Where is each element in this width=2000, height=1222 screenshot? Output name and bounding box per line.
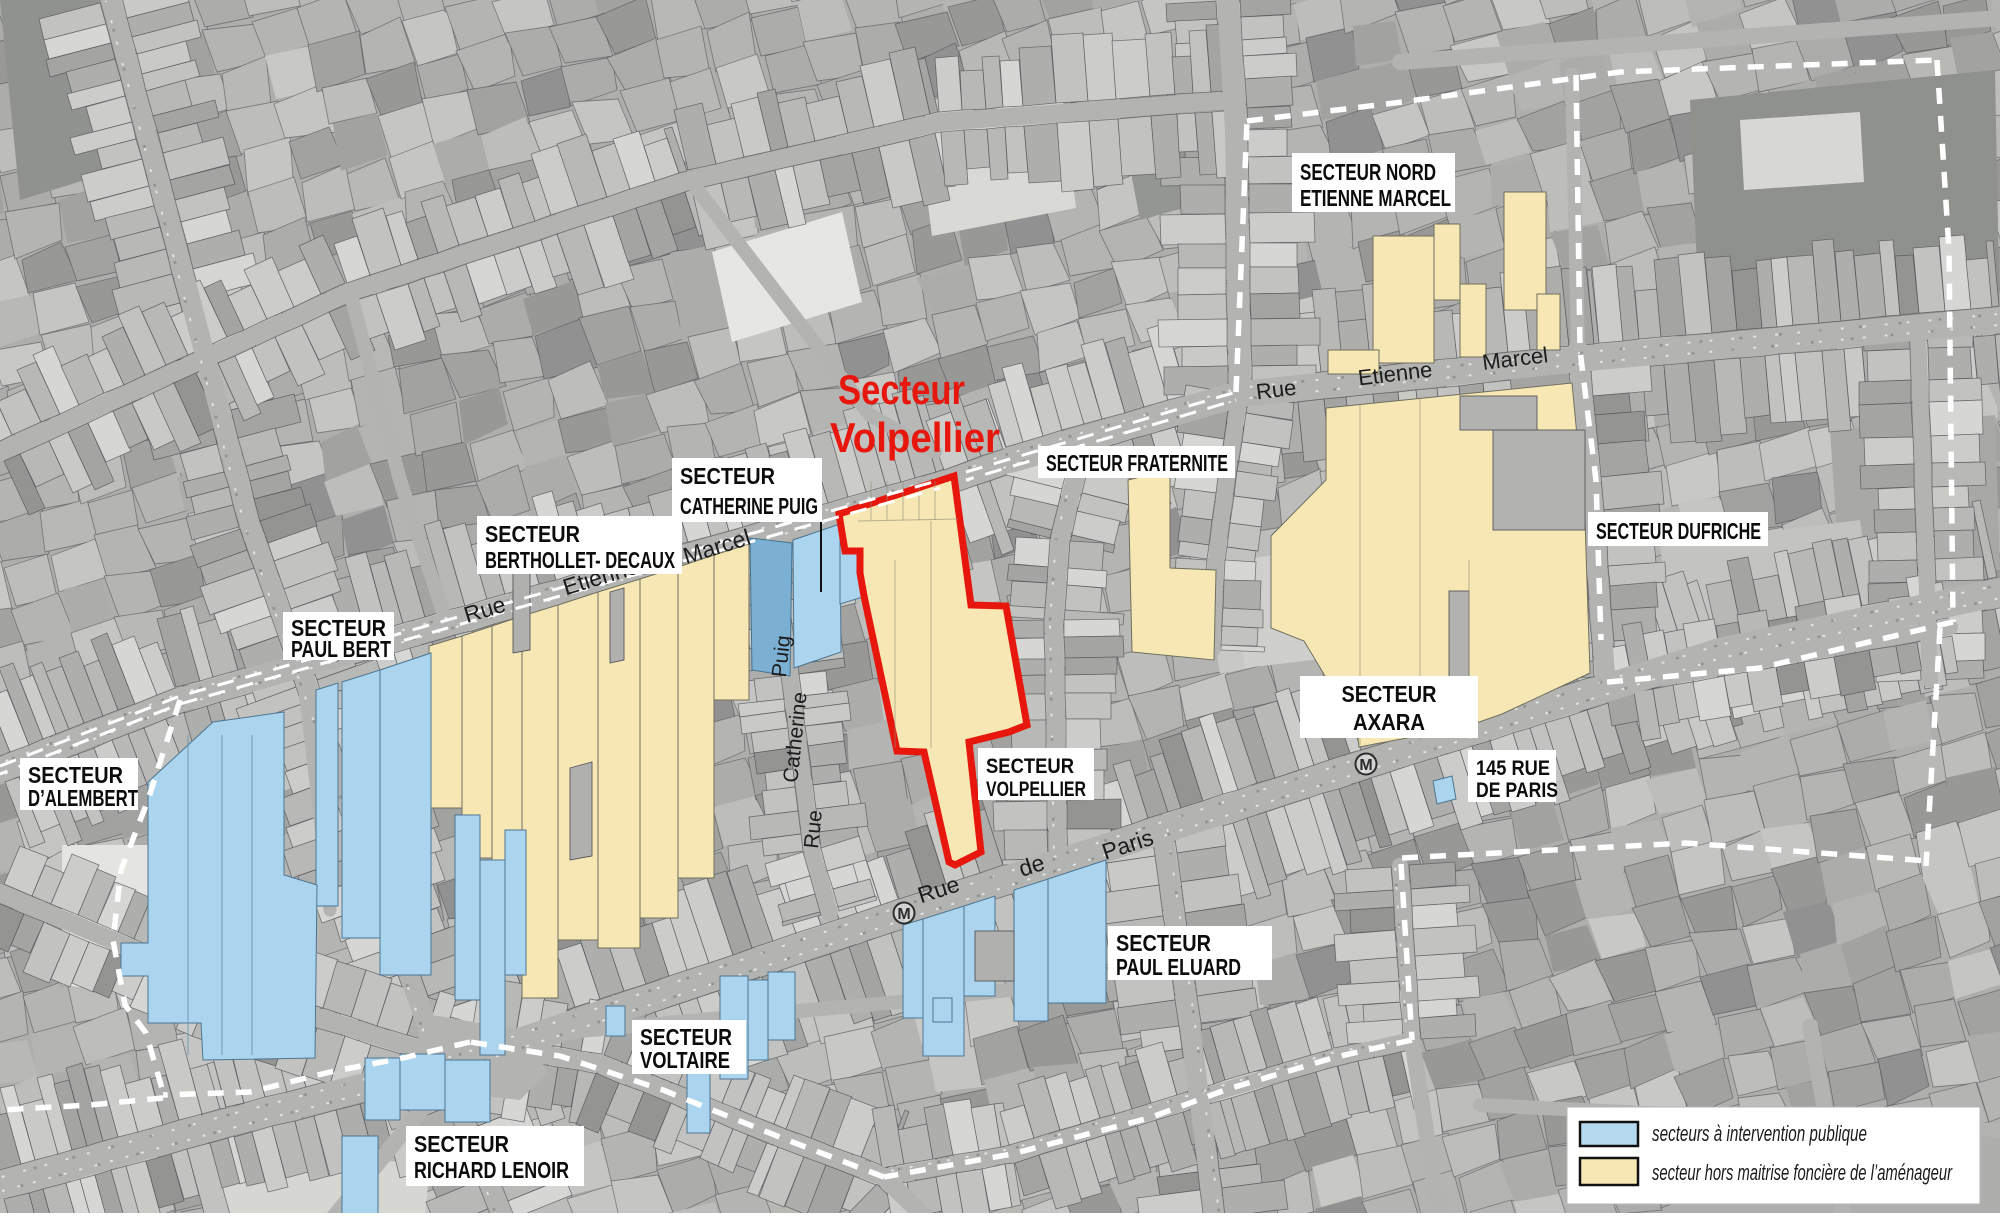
svg-text:Volpellier: Volpellier	[830, 414, 1000, 461]
svg-text:ETIENNE MARCEL: ETIENNE MARCEL	[1300, 185, 1451, 211]
svg-text:PAUL ELUARD: PAUL ELUARD	[1116, 954, 1241, 980]
svg-text:CATHERINE PUIG: CATHERINE PUIG	[680, 493, 818, 519]
svg-text:SECTEUR: SECTEUR	[986, 755, 1074, 778]
svg-text:Secteur: Secteur	[838, 366, 965, 413]
svg-text:SECTEUR: SECTEUR	[680, 463, 775, 489]
svg-text:Puig: Puig	[768, 634, 795, 678]
svg-text:M: M	[1359, 757, 1372, 774]
svg-text:SECTEUR FRATERNITE: SECTEUR FRATERNITE	[1046, 450, 1228, 476]
svg-text:SECTEUR: SECTEUR	[485, 521, 580, 547]
svg-text:secteur hors maitrise foncière: secteur hors maitrise foncière de l’amén…	[1652, 1160, 1953, 1185]
svg-text:Rue: Rue	[800, 809, 827, 850]
svg-text:SECTEUR NORD: SECTEUR NORD	[1300, 159, 1436, 185]
svg-text:AXARA: AXARA	[1353, 709, 1425, 735]
svg-text:145 RUE: 145 RUE	[1476, 757, 1550, 780]
svg-text:DE PARIS: DE PARIS	[1476, 779, 1558, 802]
svg-text:BERTHOLLET- DECAUX: BERTHOLLET- DECAUX	[485, 547, 675, 573]
svg-text:SECTEUR: SECTEUR	[1342, 681, 1437, 707]
svg-text:SECTEUR: SECTEUR	[1116, 930, 1211, 956]
svg-text:secteurs à intervention publiq: secteurs à intervention publique	[1652, 1121, 1867, 1146]
svg-text:D’ALEMBERT: D’ALEMBERT	[28, 785, 138, 811]
svg-text:PAUL BERT: PAUL BERT	[291, 636, 391, 662]
svg-text:SECTEUR: SECTEUR	[414, 1131, 509, 1157]
svg-text:M: M	[897, 906, 910, 923]
svg-text:RICHARD LENOIR: RICHARD LENOIR	[414, 1157, 569, 1183]
svg-text:VOLTAIRE: VOLTAIRE	[640, 1047, 730, 1073]
svg-text:VOLPELLIER: VOLPELLIER	[986, 778, 1086, 801]
svg-text:SECTEUR DUFRICHE: SECTEUR DUFRICHE	[1596, 518, 1761, 544]
svg-text:Rue: Rue	[1255, 375, 1298, 405]
